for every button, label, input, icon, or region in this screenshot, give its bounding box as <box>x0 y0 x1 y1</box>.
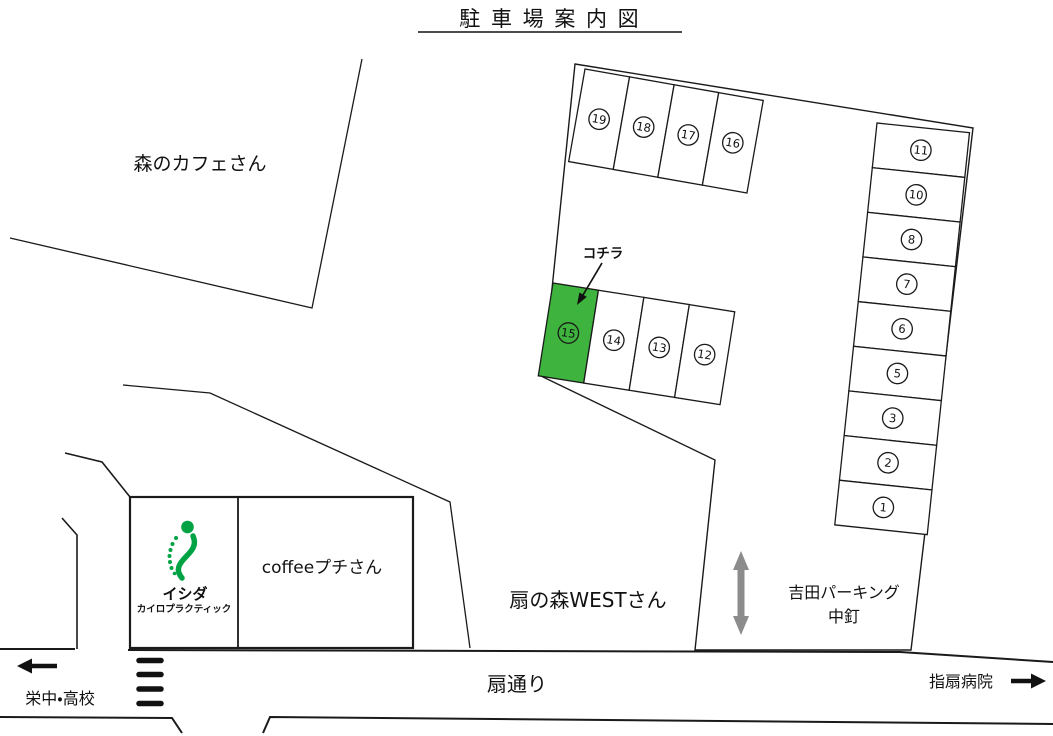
map-title: 駐 車 場 案 内 図 <box>459 7 640 31</box>
slot-number-label: 13 <box>651 339 668 355</box>
crosswalk-icon <box>139 661 161 704</box>
slot-number-label: 19 <box>591 111 608 127</box>
road-bottom-edge-right <box>263 717 1053 733</box>
parking-row-top: 19181716 <box>569 69 764 193</box>
sashiougi-hospital-label: 指扇病院 <box>929 672 993 691</box>
ishida-sub-label: カイロプラクティック <box>137 603 231 615</box>
sakae-school-label: 栄中・高校 <box>25 689 94 708</box>
yoshida-parking-sub-label: 中釘 <box>828 607 860 626</box>
slot-number-label: 14 <box>605 332 622 348</box>
slot-number-label: 6 <box>898 321 907 336</box>
kochira-label: コチラ <box>583 246 624 262</box>
slot-number-label: 7 <box>902 277 911 292</box>
map-svg: 19181716 15141312 11108765321 コチラ 駐 車 場 … <box>0 0 1053 736</box>
slot-number-label: 3 <box>888 411 897 426</box>
mori-cafe-boundary <box>10 59 362 308</box>
left-direction-arrow-icon <box>17 659 57 674</box>
slot-number-label: 1 <box>879 500 888 515</box>
slot-number-label: 17 <box>680 127 697 143</box>
road-top-edge-main <box>128 650 1053 662</box>
slot-number-label: 2 <box>884 455 893 470</box>
side-street-upper-edge <box>65 453 130 497</box>
slot-number-label: 5 <box>893 366 902 381</box>
yoshida-parking-label: 吉田パーキング <box>788 583 900 602</box>
right-direction-arrow-icon <box>1011 674 1046 689</box>
ishida-name-label: イシダ <box>162 585 207 603</box>
ougi-west-label: 扇の森WESTさん <box>509 588 666 612</box>
parking-row-middle: 15141312 <box>538 283 734 405</box>
coffee-petit-label: coffeeプチさん <box>262 558 382 578</box>
slot-number-label: 8 <box>907 232 916 247</box>
ougi-street-label: 扇通り <box>487 672 547 696</box>
two-way-arrow-icon <box>733 551 749 635</box>
slot-number-label: 12 <box>696 347 713 363</box>
road-bottom-edge-left <box>0 717 182 733</box>
right-arrow-head <box>1031 674 1046 689</box>
slot-number-label: 18 <box>635 119 652 135</box>
two-way-arrow-head-up <box>733 551 749 570</box>
slot-number-label: 15 <box>560 325 577 341</box>
slot-number-label: 11 <box>913 142 929 157</box>
side-street-lower-edge <box>62 518 77 649</box>
parking-guide-map: 19181716 15141312 11108765321 コチラ 駐 車 場 … <box>0 0 1053 736</box>
logo-head <box>181 521 194 534</box>
slot-number-label: 16 <box>724 135 741 151</box>
left-arrow-head <box>17 659 32 674</box>
slot-number-label: 10 <box>908 187 924 202</box>
parking-column-right: 11108765321 <box>835 123 970 535</box>
mori-cafe-label: 森のカフェさん <box>133 153 266 175</box>
two-way-arrow-head-down <box>733 616 749 635</box>
